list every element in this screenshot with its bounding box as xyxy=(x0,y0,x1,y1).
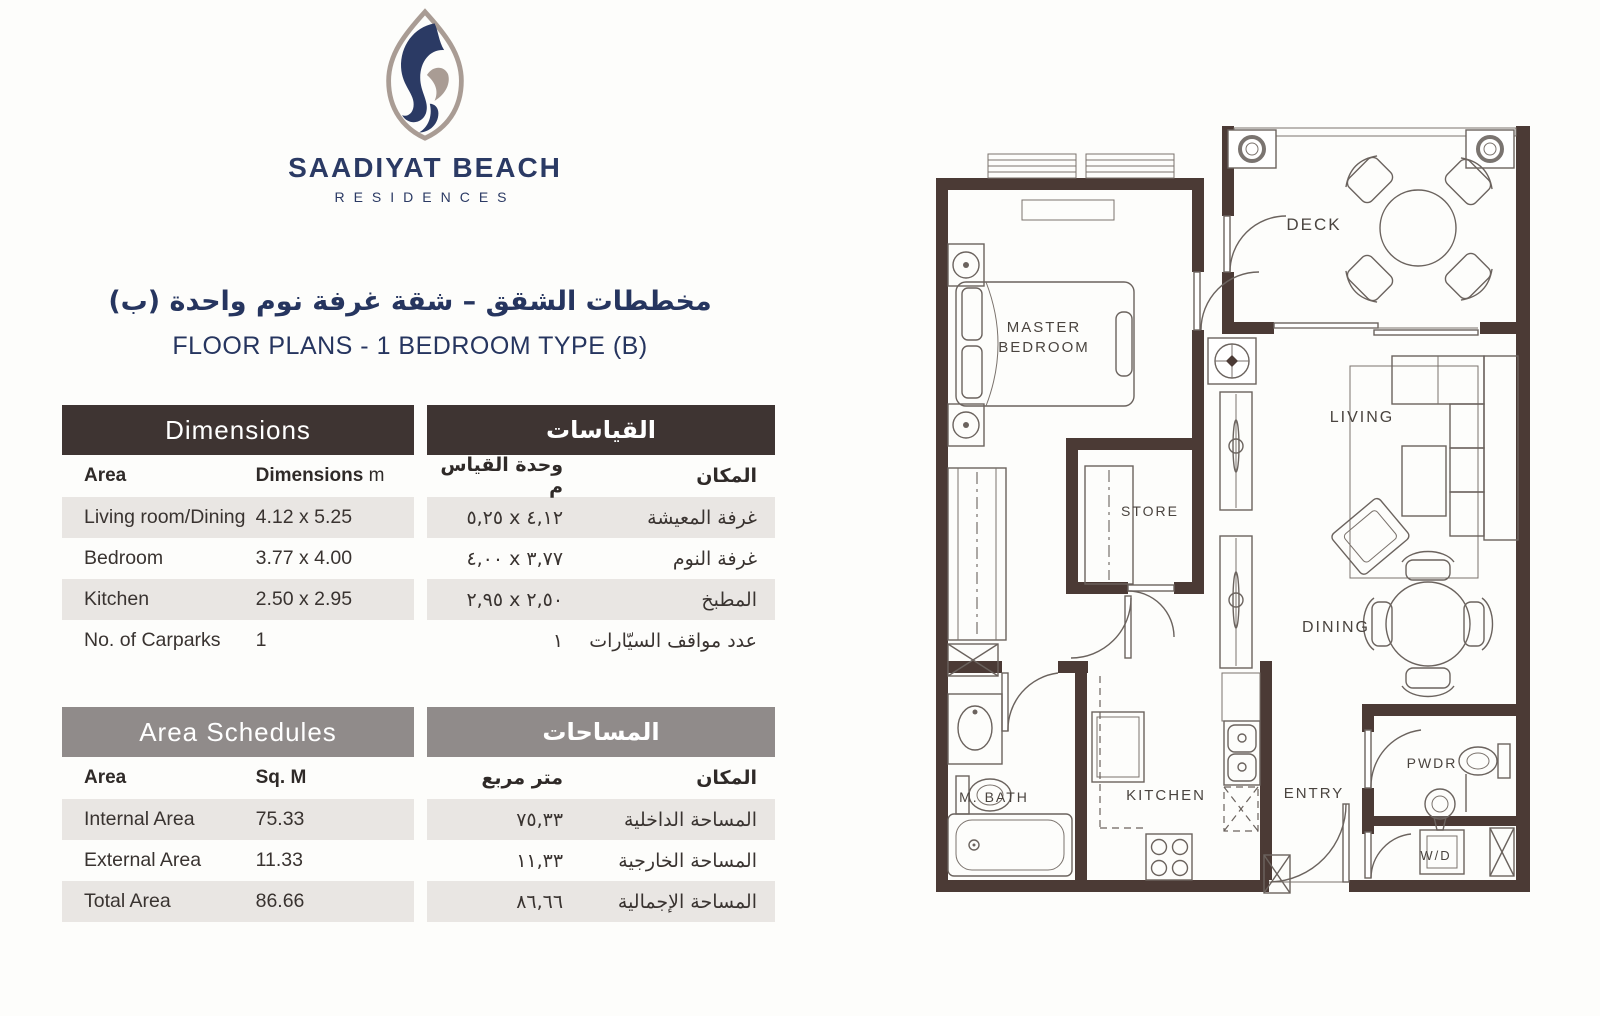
col-area: Area xyxy=(62,465,256,487)
deck-table-set xyxy=(1340,150,1497,307)
floor-plan: DECK MASTER BEDROOM LIVING STORE DINING … xyxy=(922,116,1552,908)
wardrobe xyxy=(948,468,1006,640)
col-area-ar: المكان xyxy=(587,767,775,789)
table-row: Kitchen 2.50 x 2.95 xyxy=(62,579,414,620)
col-area-ar: المكان xyxy=(587,465,775,487)
doors xyxy=(1002,216,1421,882)
page-title-arabic: مخططات الشقق – شقة غرفة نوم واحدة (ب) xyxy=(40,286,780,317)
table-row: Internal Area 75.33 xyxy=(62,799,414,840)
brand-name: SAADIYAT BEACH xyxy=(280,152,570,184)
area-schedules-header: Area Schedules xyxy=(62,707,414,757)
nightstands xyxy=(948,244,984,446)
label-pwdr: PWDR xyxy=(1407,755,1458,771)
bathroom-fixtures xyxy=(948,694,1072,876)
col-sqm: Sq. M xyxy=(256,767,414,789)
label-master-1: MASTER xyxy=(1007,319,1082,336)
col-sqm-ar: متر مربع xyxy=(427,767,587,789)
living-furniture xyxy=(1330,356,1518,578)
table-row: المساحة الإجمالية ٨٦,٦٦ xyxy=(427,881,775,922)
column-header-row: Area Sq. M xyxy=(62,757,414,799)
room-labels: DECK MASTER BEDROOM LIVING STORE DINING … xyxy=(959,215,1457,863)
bedroom-windows xyxy=(988,154,1174,178)
page-title-english: FLOOR PLANS - 1 BEDROOM TYPE (B) xyxy=(40,332,780,361)
table-row: Bedroom 3.77 x 4.00 xyxy=(62,538,414,579)
area-schedules-header-ar: المساحات xyxy=(427,707,775,757)
area-schedules-table-en: Area Schedules Area Sq. M Internal Area … xyxy=(62,707,414,922)
hall-cabinets xyxy=(1208,338,1256,668)
table-row: المطبخ ٢,٩٥ x ٢,٥٠ xyxy=(427,579,775,620)
label-m-bath: M. BATH xyxy=(959,789,1029,805)
table-row: Living room/Dining 4.12 x 5.25 xyxy=(62,497,414,538)
dimensions-table-ar: القياسات المكان وحدة القياس م غرفة المعي… xyxy=(427,405,775,661)
area-schedules-table-ar: المساحات المكان متر مربع المساحة الداخلي… xyxy=(427,707,775,922)
table-row: No. of Carparks 1 xyxy=(62,620,414,661)
col-dimensions: Dimensions m xyxy=(256,465,414,487)
master-bed xyxy=(956,200,1134,406)
brand-subtitle: RESIDENCES xyxy=(280,189,570,205)
table-row: غرفة المعيشة ٥,٢٥ x ٤,١٢ xyxy=(427,497,775,538)
label-living: LIVING xyxy=(1330,409,1394,426)
tables-grid: Dimensions Area Dimensions m Living room… xyxy=(62,405,776,922)
saadiyat-logo-icon xyxy=(375,8,475,142)
column-header-row: المكان متر مربع xyxy=(427,757,775,799)
dimensions-table-header: Dimensions xyxy=(62,405,414,455)
table-row: External Area 11.33 xyxy=(62,840,414,881)
dining-table-set xyxy=(1364,552,1493,697)
table-row: غرفة النوم ٤,٠٠ x ٣,٧٧ xyxy=(427,538,775,579)
label-dining: DINING xyxy=(1302,619,1370,636)
table-row: عدد مواقف السيّارات ١ xyxy=(427,620,775,661)
label-store: STORE xyxy=(1121,503,1179,519)
dimensions-table-en: Dimensions Area Dimensions m Living room… xyxy=(62,405,414,661)
sliding-door xyxy=(1274,323,1478,335)
label-master-2: BEDROOM xyxy=(998,339,1090,356)
dimensions-table-header-ar: القياسات xyxy=(427,405,775,455)
col-dimensions-ar: وحدة القياس م xyxy=(427,454,587,498)
label-deck: DECK xyxy=(1286,215,1341,234)
kitchen-fixtures xyxy=(1092,673,1260,880)
label-wd: W/D xyxy=(1420,848,1451,863)
label-entry: ENTRY xyxy=(1284,785,1345,802)
store-shelf xyxy=(1085,466,1133,584)
column-header-row: Area Dimensions m xyxy=(62,455,414,497)
column-header-row: المكان وحدة القياس م xyxy=(427,455,775,497)
table-row: المساحة الداخلية ٧٥,٣٣ xyxy=(427,799,775,840)
table-row: Total Area 86.66 xyxy=(62,881,414,922)
col-area: Area xyxy=(62,767,256,789)
label-kitchen: KITCHEN xyxy=(1126,787,1206,804)
table-row: المساحة الخارجية ١١,٣٣ xyxy=(427,840,775,881)
brand-block: SAADIYAT BEACH RESIDENCES xyxy=(280,8,570,205)
walls xyxy=(936,126,1530,892)
